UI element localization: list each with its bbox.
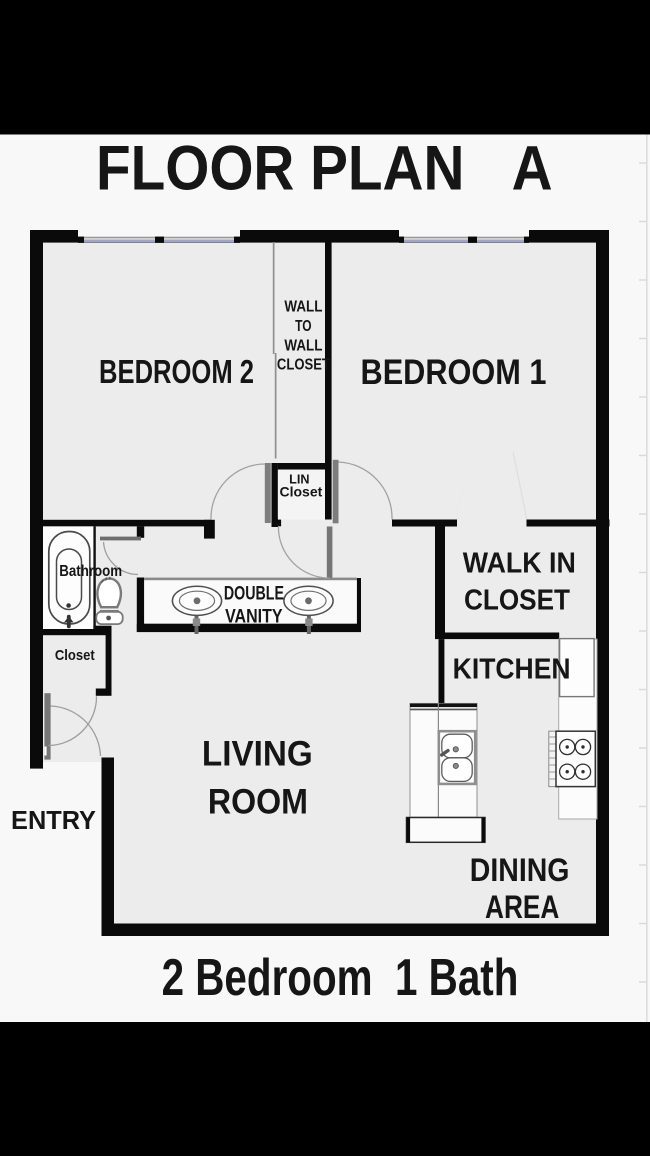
svg-text:Bathroom: Bathroom <box>59 563 122 580</box>
svg-text:BEDROOM 2: BEDROOM 2 <box>99 354 254 391</box>
svg-text:DINING: DINING <box>470 853 570 888</box>
svg-text:AREA: AREA <box>485 891 559 926</box>
svg-text:LIVING: LIVING <box>202 735 313 774</box>
svg-text:ENTRY: ENTRY <box>11 807 96 835</box>
svg-text:WALL: WALL <box>284 299 322 316</box>
svg-text:DOUBLE: DOUBLE <box>224 582 284 604</box>
svg-text:CLOSET: CLOSET <box>277 357 330 375</box>
svg-text:ROOM: ROOM <box>208 784 308 823</box>
svg-text:Closet: Closet <box>280 483 323 499</box>
svg-text:WALL: WALL <box>284 337 322 354</box>
svg-text:FLOOR PLAN A: FLOOR PLAN A <box>96 133 553 203</box>
svg-text:CLOSET: CLOSET <box>464 583 570 615</box>
svg-text:2 Bedroom 1 Bath: 2 Bedroom 1 Bath <box>162 948 519 1006</box>
svg-text:VANITY: VANITY <box>225 605 283 627</box>
svg-text:BEDROOM 1: BEDROOM 1 <box>361 353 547 393</box>
svg-text:TO: TO <box>295 316 311 334</box>
svg-text:KITCHEN: KITCHEN <box>453 653 571 685</box>
svg-text:Closet: Closet <box>55 646 95 663</box>
svg-text:WALK IN: WALK IN <box>463 547 576 579</box>
